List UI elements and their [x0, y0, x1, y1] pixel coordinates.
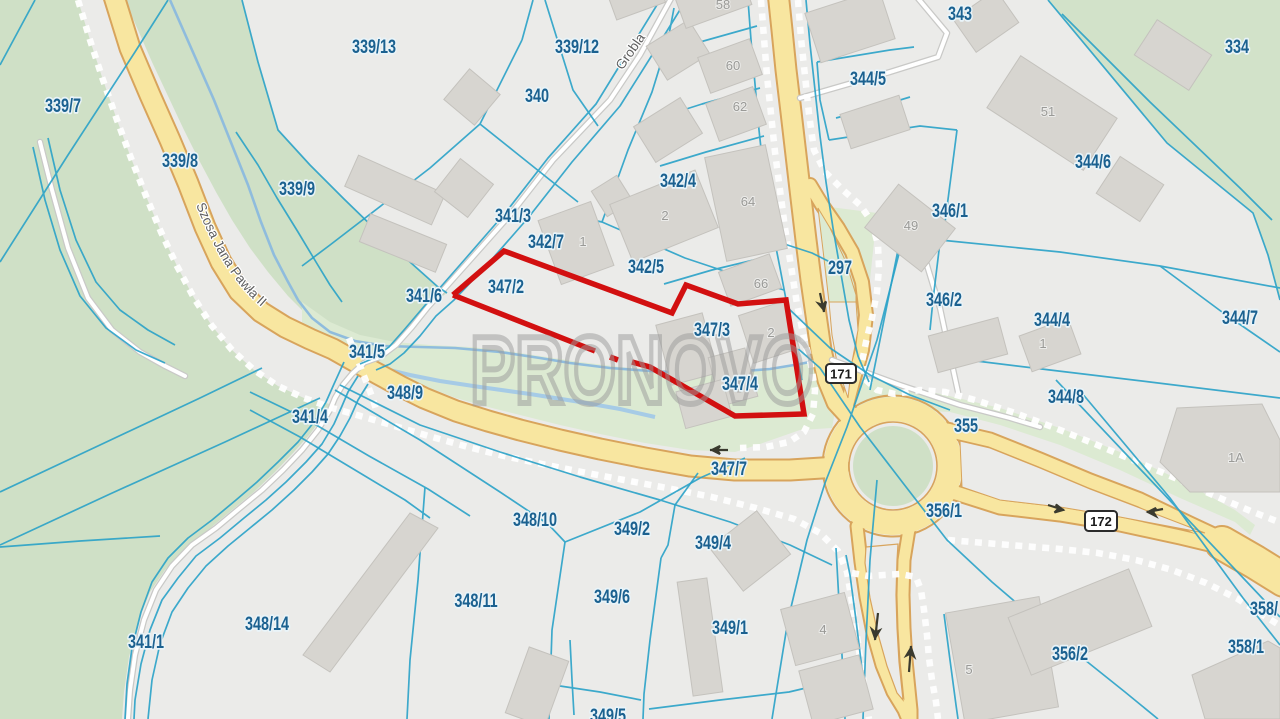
svg-text:66: 66 — [754, 276, 768, 291]
svg-text:348/14: 348/14 — [245, 613, 290, 634]
svg-text:346/1: 346/1 — [932, 200, 968, 221]
svg-text:347/3: 347/3 — [694, 319, 730, 340]
svg-text:341/1: 341/1 — [128, 631, 164, 652]
svg-text:339/7: 339/7 — [45, 95, 81, 116]
svg-text:64: 64 — [741, 194, 755, 209]
svg-text:341/6: 341/6 — [406, 285, 442, 306]
svg-text:62: 62 — [733, 99, 747, 114]
svg-text:349/6: 349/6 — [594, 586, 630, 607]
svg-text:1: 1 — [1039, 336, 1046, 351]
svg-text:342/5: 342/5 — [628, 256, 664, 277]
svg-text:49: 49 — [904, 218, 918, 233]
svg-text:339/9: 339/9 — [279, 178, 315, 199]
svg-text:297: 297 — [828, 257, 852, 278]
svg-text:344/6: 344/6 — [1075, 151, 1111, 172]
svg-text:342/7: 342/7 — [528, 231, 564, 252]
svg-text:347/7: 347/7 — [711, 458, 747, 479]
svg-text:348/10: 348/10 — [513, 509, 557, 530]
svg-text:172: 172 — [1090, 514, 1112, 529]
svg-text:51: 51 — [1041, 104, 1055, 119]
svg-text:339/13: 339/13 — [352, 36, 396, 57]
svg-text:349/1: 349/1 — [712, 617, 748, 638]
svg-text:347/4: 347/4 — [722, 373, 759, 394]
svg-text:341/3: 341/3 — [495, 205, 531, 226]
svg-text:5: 5 — [965, 662, 972, 677]
svg-text:341/5: 341/5 — [349, 341, 385, 362]
svg-text:339/8: 339/8 — [162, 150, 198, 171]
svg-text:344/4: 344/4 — [1034, 309, 1071, 330]
svg-text:348/9: 348/9 — [387, 382, 423, 403]
svg-text:334: 334 — [1225, 36, 1250, 57]
svg-text:349/2: 349/2 — [614, 518, 650, 539]
svg-text:346/2: 346/2 — [926, 289, 962, 310]
svg-text:356/1: 356/1 — [926, 500, 962, 521]
svg-text:4: 4 — [819, 622, 826, 637]
svg-text:355: 355 — [954, 415, 978, 436]
svg-text:2: 2 — [661, 208, 668, 223]
svg-text:358/: 358/ — [1250, 598, 1278, 619]
svg-text:341/4: 341/4 — [292, 406, 329, 427]
svg-text:PRONOVO: PRONOVO — [470, 316, 814, 424]
svg-text:340: 340 — [525, 85, 549, 106]
svg-text:339/12: 339/12 — [555, 36, 599, 57]
svg-text:356/2: 356/2 — [1052, 643, 1088, 664]
svg-text:349/4: 349/4 — [695, 532, 732, 553]
svg-text:348/11: 348/11 — [454, 590, 497, 611]
svg-text:342/4: 342/4 — [660, 170, 697, 191]
svg-text:344/7: 344/7 — [1222, 307, 1258, 328]
svg-text:171: 171 — [830, 367, 852, 382]
svg-text:1: 1 — [579, 234, 586, 249]
svg-text:344/8: 344/8 — [1048, 386, 1084, 407]
svg-text:60: 60 — [726, 58, 740, 73]
svg-text:347/2: 347/2 — [488, 276, 524, 297]
svg-text:343: 343 — [948, 3, 972, 24]
svg-text:344/5: 344/5 — [850, 68, 886, 89]
svg-text:358/1: 358/1 — [1228, 636, 1264, 657]
svg-text:58: 58 — [716, 0, 730, 12]
svg-text:349/5: 349/5 — [590, 705, 626, 719]
svg-text:1A: 1A — [1228, 450, 1244, 465]
